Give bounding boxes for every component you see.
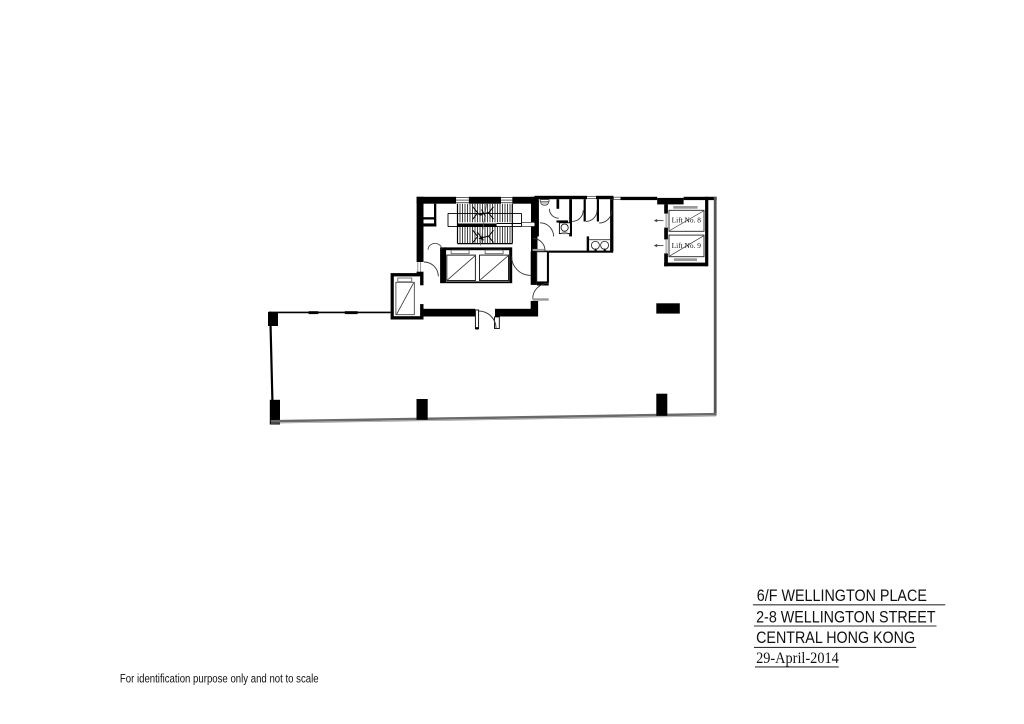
svg-text:Lift No. 8: Lift No. 8 (672, 216, 702, 225)
svg-text:CENTRAL HONG KONG: CENTRAL HONG KONG (756, 628, 915, 647)
svg-text:Lift No. 9: Lift No. 9 (672, 241, 702, 250)
svg-text:6/F WELLINGTON PLACE: 6/F WELLINGTON PLACE (757, 586, 927, 605)
svg-text:For identification purpose onl: For identification purpose only and not … (120, 671, 319, 685)
svg-text:2-8 WELLINGTON STREET: 2-8 WELLINGTON STREET (756, 608, 935, 627)
svg-text:29-April-2014: 29-April-2014 (756, 650, 839, 667)
